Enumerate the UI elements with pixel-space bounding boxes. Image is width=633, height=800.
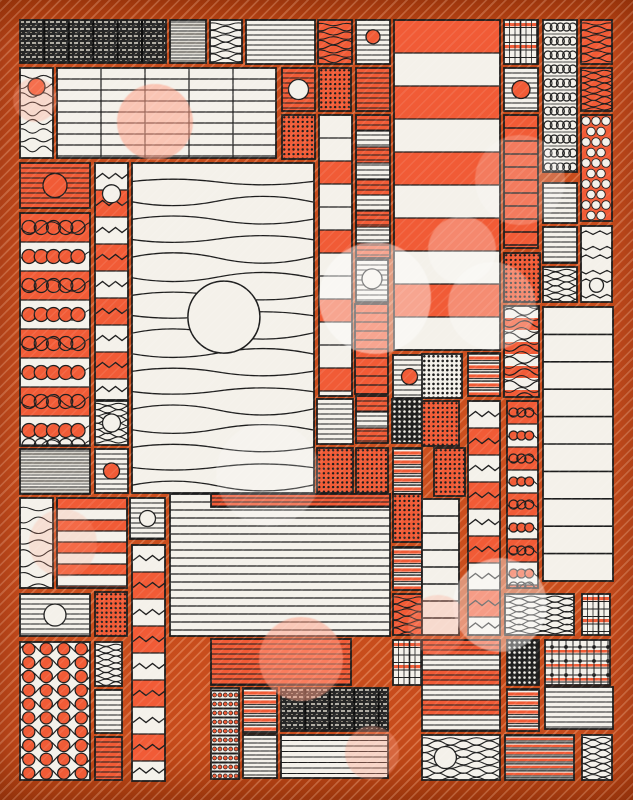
tile-dots	[507, 640, 539, 685]
tile-hl	[355, 304, 388, 394]
tile-hl	[246, 20, 315, 64]
tile-zzrows	[579, 226, 633, 302]
tile-waves	[578, 735, 633, 781]
tile-dots	[434, 448, 465, 496]
tile-hl	[356, 260, 388, 302]
tile-mixed	[507, 689, 539, 733]
tile-hl	[422, 499, 459, 635]
tile-bands	[319, 115, 352, 396]
tile-hl	[130, 498, 165, 539]
tile-dots	[282, 115, 315, 160]
tile-weave	[281, 688, 388, 731]
tile-plaid	[582, 594, 610, 635]
tile-hl	[356, 20, 390, 64]
tile-hl	[243, 735, 277, 778]
tile-mixed	[468, 353, 500, 397]
tile-hl	[356, 68, 390, 111]
tile-waves	[577, 68, 633, 111]
tile-plaiddots	[545, 640, 610, 685]
tile-mixed	[393, 547, 422, 591]
tile-mixed	[243, 688, 277, 733]
tile-hl	[393, 355, 426, 398]
tile-dots	[319, 68, 351, 111]
tile-layer	[0, 0, 633, 800]
tile-weave	[20, 20, 166, 63]
tile-dots	[393, 494, 422, 542]
tile-bands	[57, 498, 127, 588]
tile-hl	[95, 449, 128, 493]
tile-dots	[422, 354, 462, 399]
tile-dots	[422, 401, 459, 446]
tile-hl	[543, 307, 613, 581]
tile-plaid	[504, 20, 538, 64]
tile-hl	[170, 494, 390, 636]
tile-waves	[577, 20, 633, 64]
tile-bands	[356, 396, 388, 443]
artwork-canvas	[0, 0, 633, 800]
tile-hl	[543, 227, 577, 263]
tile-hl	[211, 494, 390, 507]
tile-dots	[504, 253, 540, 302]
tile-hl	[317, 399, 353, 444]
tile-hl	[504, 115, 538, 248]
tile-hl	[545, 687, 613, 729]
tile-gray	[170, 20, 206, 63]
tile-gridtable	[57, 68, 276, 158]
tile-bands	[394, 20, 500, 350]
tile-hl	[95, 737, 122, 780]
tile-hl	[543, 183, 577, 223]
tile-polka	[581, 115, 612, 221]
tile-bands	[422, 640, 500, 731]
tile-hl	[20, 163, 90, 208]
tile-chainrings	[543, 20, 577, 174]
tile-hl	[20, 594, 90, 636]
tile-hl	[504, 68, 538, 111]
tile-mixed	[505, 735, 574, 783]
tile-hl	[281, 735, 388, 778]
tile-plaid	[393, 640, 422, 685]
tile-mixed	[393, 448, 422, 501]
tile-gray	[20, 449, 90, 494]
tile-hl	[282, 68, 315, 111]
tile-beads	[211, 688, 239, 779]
tile-dots	[95, 592, 127, 637]
tile-bands	[356, 115, 390, 258]
tile-hl	[95, 690, 122, 733]
tile-dots	[356, 448, 388, 493]
tile-hl	[211, 639, 351, 685]
tile-dots	[317, 448, 353, 493]
tile-dots	[392, 399, 422, 443]
